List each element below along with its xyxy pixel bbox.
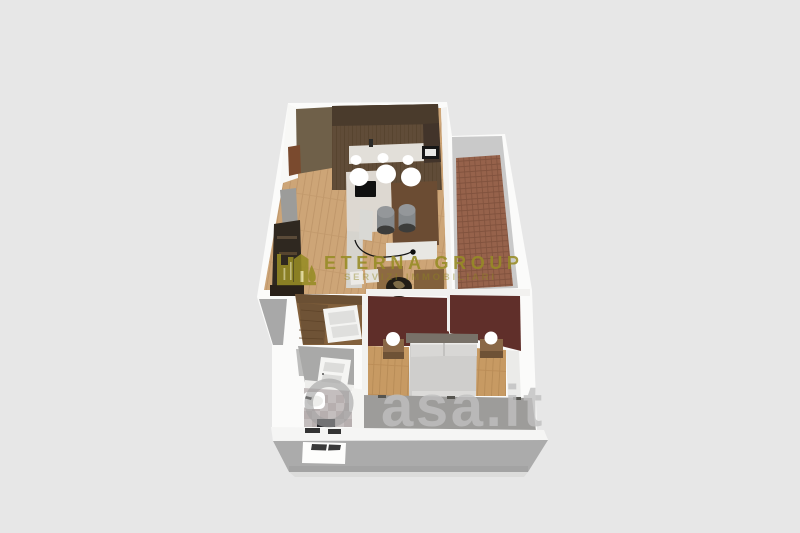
svg-text:SERVIZI IMMOBILIARI: SERVIZI IMMOBILIARI <box>344 272 497 283</box>
svg-text:asa.it: asa.it <box>381 374 545 439</box>
svg-text:ETERNA GROUP: ETERNA GROUP <box>324 253 524 273</box>
